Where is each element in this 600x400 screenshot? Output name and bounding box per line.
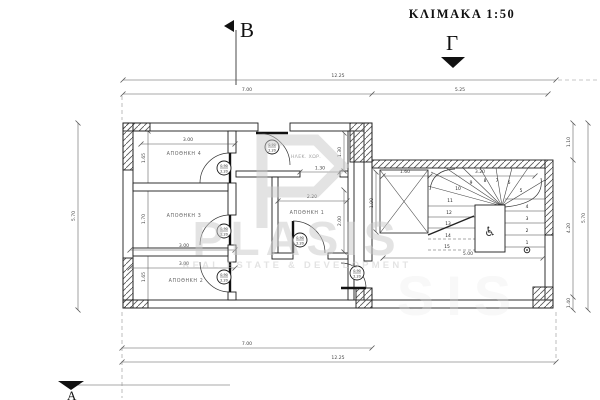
dim-top-left: 7.00 (242, 87, 252, 93)
stair-step-number: 2 (526, 228, 529, 234)
svg-text:0.90: 0.90 (220, 164, 228, 168)
svg-text:0.90: 0.90 (220, 273, 228, 277)
door-size-tag: 0.90 2.20 (217, 161, 231, 175)
section-marker-alpha: Α (58, 381, 230, 400)
stair-step-number: 1 (526, 240, 529, 246)
section-marker-b-label: B (240, 18, 254, 42)
floor-plan-sheet: B ΚΛΙΜΑΚΑ 1:50 Γ Α 12.25 7.00 5.25 7.00 … (0, 0, 600, 400)
floor-plan-svg: B ΚΛΙΜΑΚΑ 1:50 Γ Α 12.25 7.00 5.25 7.00 … (0, 0, 600, 400)
section-marker-alpha-label: Α (67, 388, 77, 400)
svg-text:2.20: 2.20 (268, 149, 276, 153)
dim-right-top: 1.10 (566, 137, 572, 147)
dim-right-overall: 5.70 (581, 213, 587, 223)
dim-hall-w: 1.30 (315, 166, 325, 172)
dim-stair-bottom-w: 5.00 (463, 251, 473, 257)
room-label-apothiki-2: ΑΠΟΘΗΚΗ 2 (169, 278, 204, 284)
watermark-name-partial: SIS (397, 264, 523, 327)
dim-room4-w: 3.00 (183, 137, 193, 143)
stair-step-number: 12 (446, 210, 452, 216)
section-marker-gamma: Γ (441, 31, 465, 68)
scale-label: ΚΛΙΜΑΚΑ 1:50 (409, 7, 515, 21)
stair-step-number: 6 (508, 180, 511, 186)
hatched-flue-block (350, 123, 372, 162)
hatched-wall (123, 123, 133, 170)
stair-step-number: 14 (445, 233, 451, 239)
watermark-tagline: REAL ESTATE & DEVELOPMENT (183, 260, 412, 271)
section-arrow-gamma-icon (441, 57, 465, 68)
stair-step-number: 9 (470, 180, 473, 186)
svg-text:2.20: 2.20 (353, 275, 361, 279)
hatched-wall (533, 287, 553, 308)
watermark-name: PLASIS (192, 213, 401, 266)
section-arrow-b-icon (224, 20, 234, 32)
dim-right-bottom: 1.40 (566, 298, 572, 308)
stair-step-number: 10 (455, 186, 461, 192)
dim-room3-h: 1.70 (141, 214, 147, 224)
room-label-apothiki-4: ΑΠΟΘΗΚΗ 4 (167, 151, 202, 157)
svg-text:2.20: 2.20 (220, 279, 228, 283)
dim-bottom-overall: 12.25 (331, 355, 344, 361)
stair-step-number: 15 (444, 244, 450, 250)
dim-room2-h: 1.65 (141, 272, 147, 282)
stair-step-number: 8 (484, 178, 487, 184)
door-size-tag: 0.90 2.20 (217, 270, 231, 284)
dim-niche-h: 1.90 (369, 198, 375, 208)
section-marker-gamma-label: Γ (446, 31, 458, 55)
stair-step-number: 4 (526, 204, 529, 210)
dim-room4-h: 1.65 (141, 153, 147, 163)
stair-step-number: 3 (526, 216, 529, 222)
hatched-wall (545, 160, 553, 235)
dim-top-right: 5.25 (455, 87, 465, 93)
staircase: ♿ 1 2 3 4 5 6 7 8 9 10 11 12 13 14 15 (380, 168, 545, 253)
hatched-wall (372, 160, 545, 168)
dim-bottom-left: 7.00 (242, 341, 252, 347)
dim-left-overall: 5.70 (71, 211, 77, 221)
room-label-hall: ΗΛΕΚ. ΧΩΡ. (291, 154, 321, 160)
stair-step-number: 13 (445, 221, 451, 227)
wheelchair-icon: ♿ (484, 225, 496, 240)
stair-step-number: 11 (447, 198, 453, 204)
dim-top-overall: 12.25 (331, 73, 344, 79)
section-marker-b: B (224, 18, 254, 85)
stair-step-number: 7 (496, 178, 499, 184)
scale-text: ΚΛΙΜΑΚΑ 1:50 (409, 7, 515, 21)
hatched-wall (356, 288, 372, 308)
dim-right-mid: 4.20 (566, 223, 572, 233)
svg-text:2.20: 2.20 (220, 170, 228, 174)
hatched-wall (123, 300, 148, 308)
stair-step-number: 5 (520, 188, 523, 194)
dim-room3-w: 3.00 (179, 243, 189, 249)
